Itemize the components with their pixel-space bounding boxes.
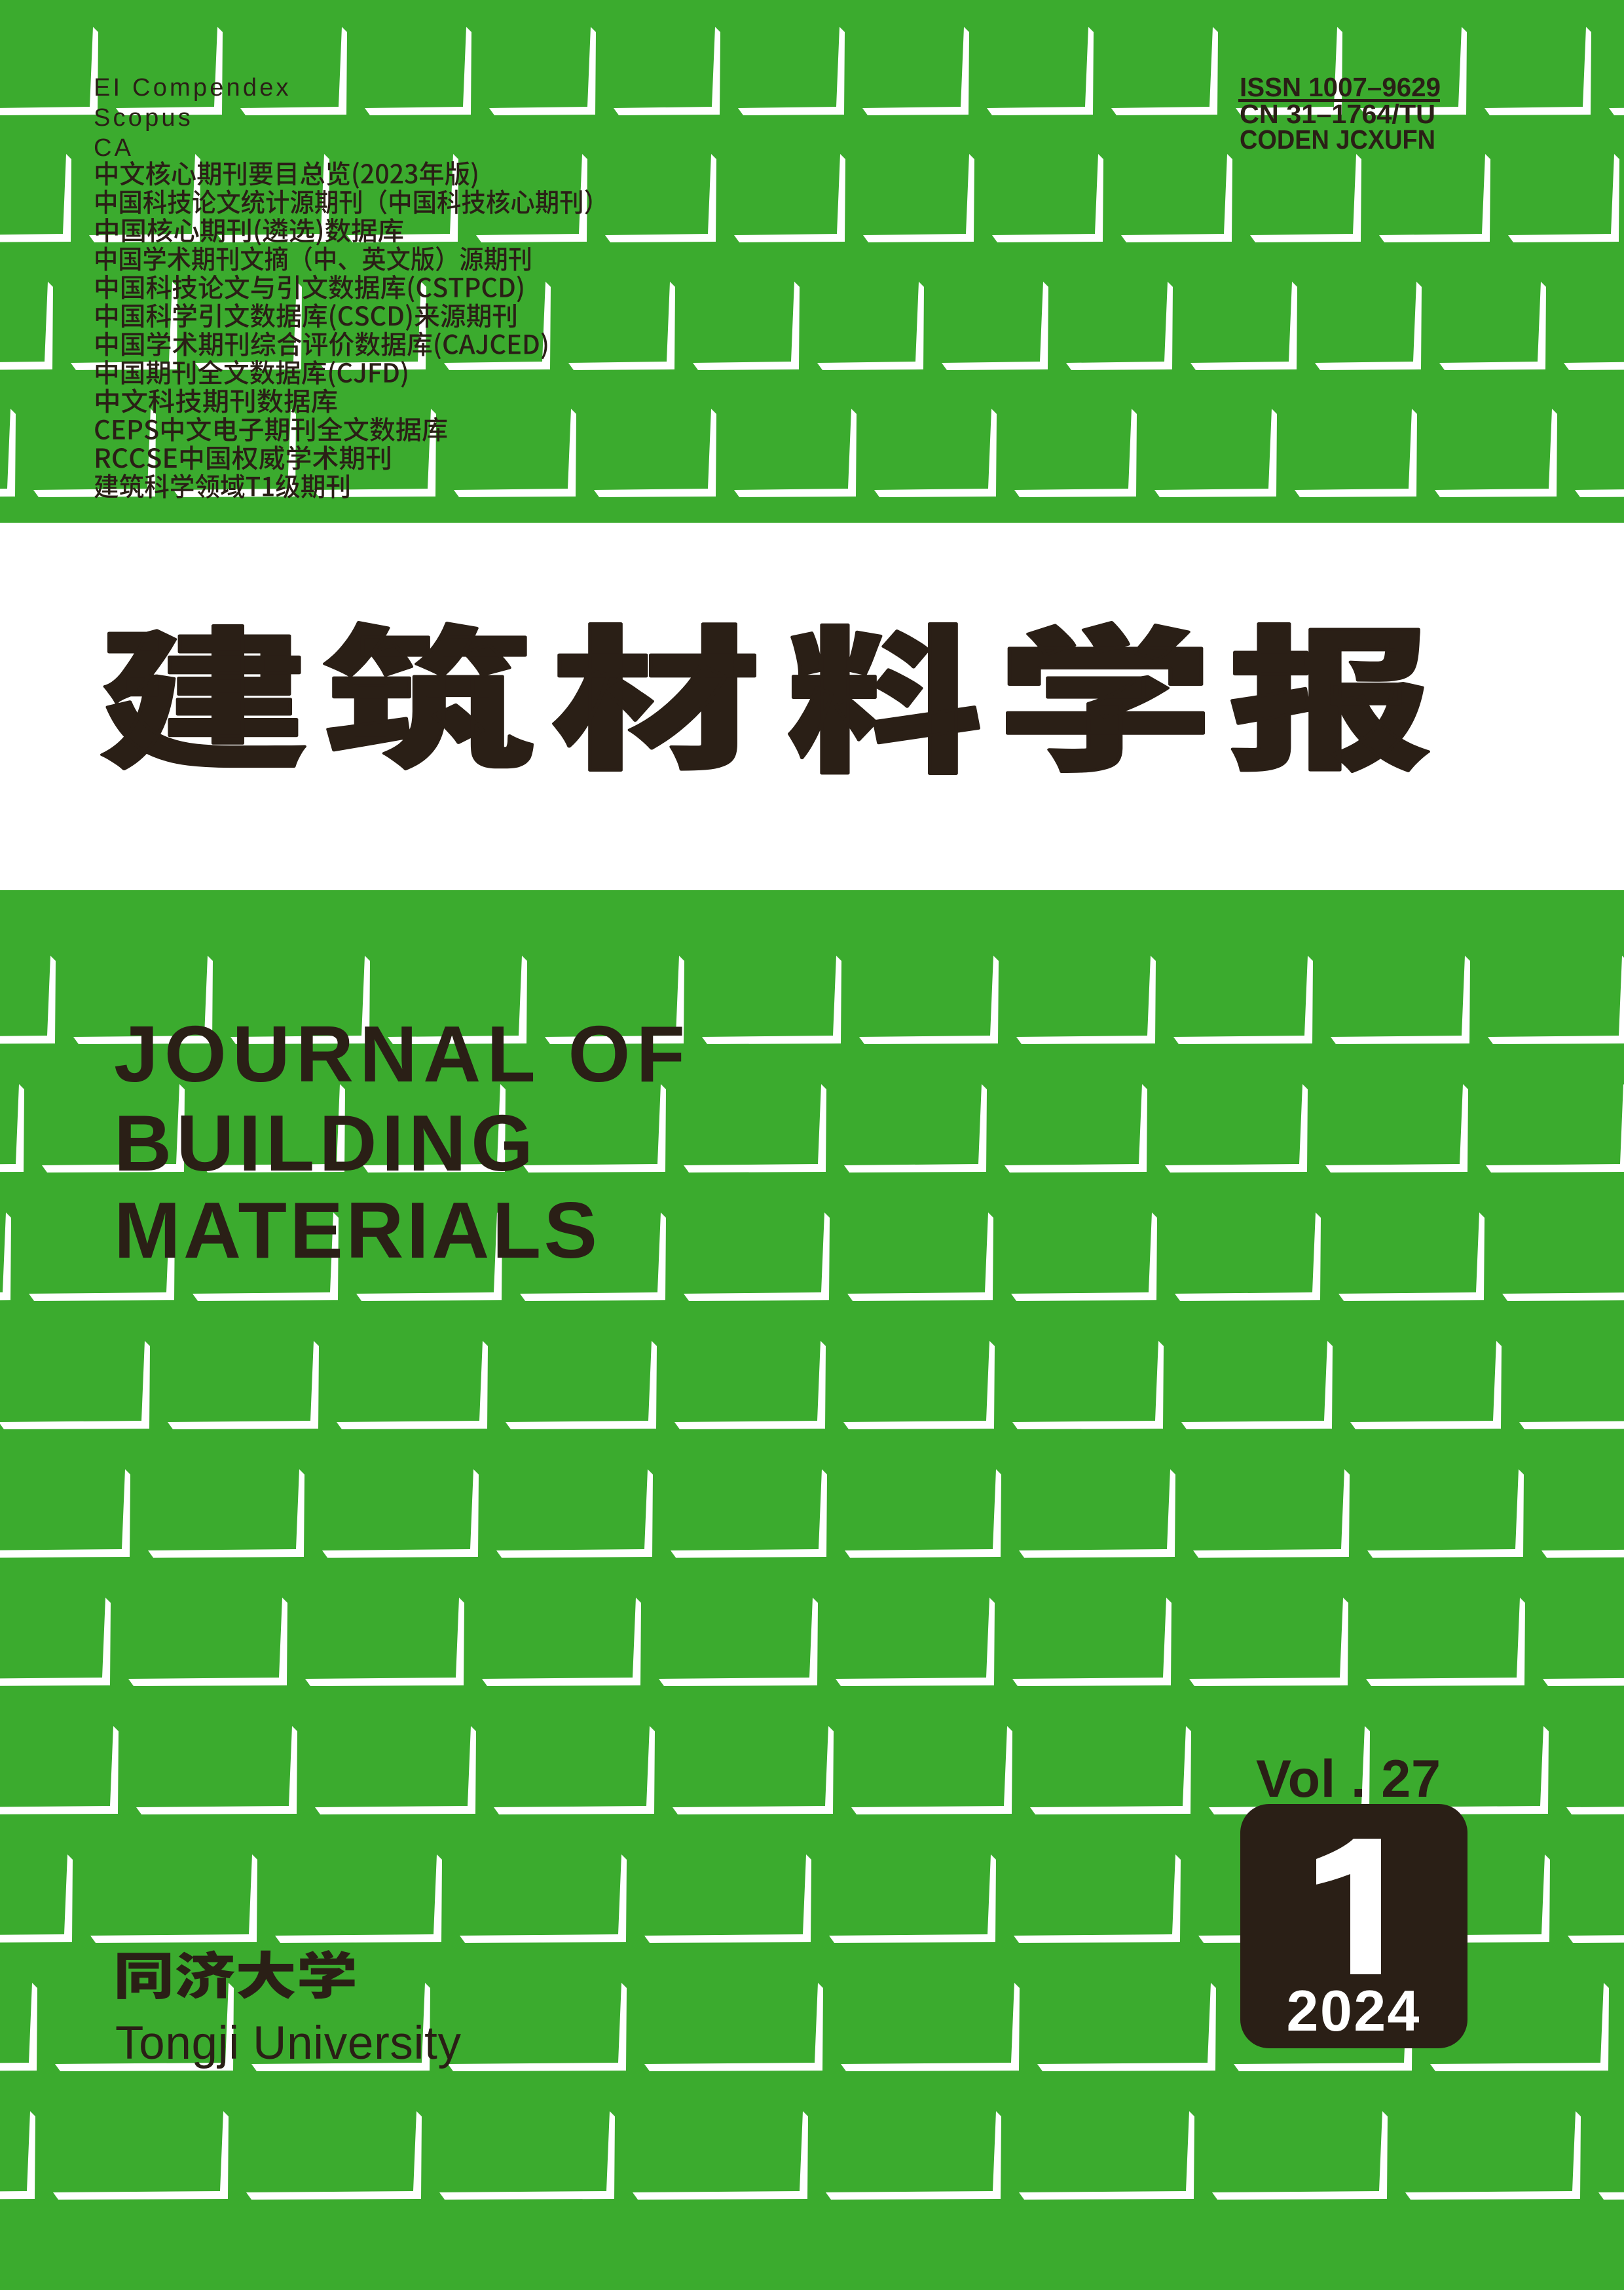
svg-text:CA: CA [94,134,134,162]
svg-text:Scopus: Scopus [94,104,193,132]
svg-text:Vol . 27: Vol . 27 [1256,1750,1441,1809]
svg-text:MATERIALS: MATERIALS [114,1186,597,1275]
svg-text:ISSN 1007–9629: ISSN 1007–9629 [1240,72,1441,102]
svg-text:EI Compendex: EI Compendex [94,74,291,102]
svg-text:Tongji University: Tongji University [115,2018,462,2069]
svg-text:JOURNAL OF: JOURNAL OF [114,1009,685,1098]
svg-text:CODEN JCXUFN: CODEN JCXUFN [1240,124,1435,155]
